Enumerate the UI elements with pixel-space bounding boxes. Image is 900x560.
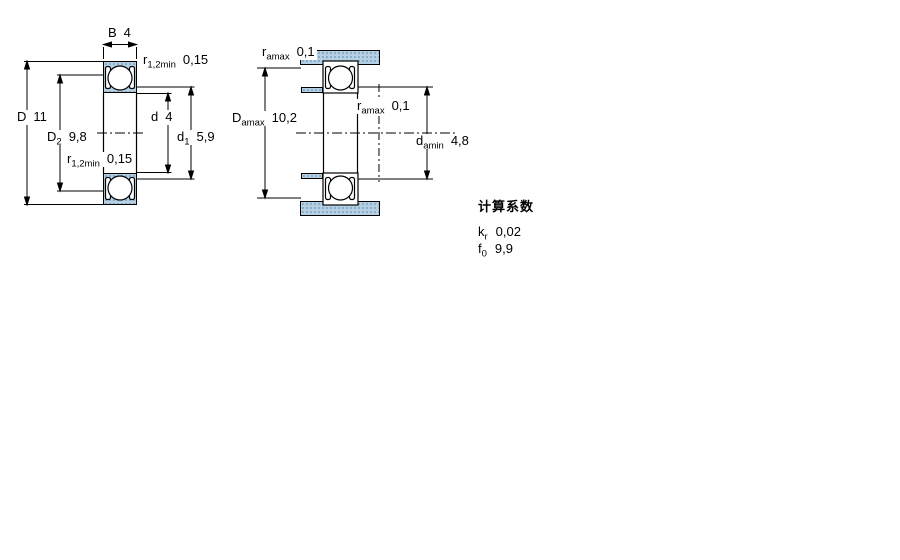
dim-label-d1: d15,9 [175, 130, 217, 145]
dim-label-r12min-bottom: r1,2min0,15 [65, 152, 134, 167]
right-abutment-view [296, 61, 455, 205]
dim-label-B: B4 [106, 26, 133, 41]
right-view-dimensions [257, 68, 433, 198]
dim-symbol: D [232, 110, 241, 125]
dim-value: 4 [165, 109, 172, 124]
dim-value: 0,1 [392, 98, 410, 113]
dim-label-D2: D29,8 [45, 130, 89, 145]
dim-label-Damax: Damax10,2 [230, 111, 299, 126]
bearing-drawing-page: B4 D11 D29,8 r1,2min0,15 r1,2min0,15 d4 … [0, 0, 900, 560]
dim-label-D: D11 [15, 110, 49, 125]
shaft-shoulder-top [301, 87, 323, 93]
dim-symbol: D [17, 109, 26, 124]
housing-section-bottom [300, 201, 380, 216]
dim-value: 4,8 [451, 133, 469, 148]
dim-value: 0,1 [297, 44, 315, 59]
factor-value: 0,02 [496, 224, 521, 239]
dim-label-ramax-top: ramax0,1 [260, 45, 317, 60]
calculation-factors-block: 计算系数 kr0,02 f09,9 [478, 196, 534, 257]
dim-symbol: D [47, 129, 56, 144]
dim-value: 9,8 [69, 129, 87, 144]
dim-value: 11 [33, 109, 47, 124]
shaft-shoulder-bottom [301, 173, 323, 179]
dim-symbol: d [151, 109, 158, 124]
dim-value: 10,2 [272, 110, 297, 125]
dim-value: 0,15 [183, 52, 208, 67]
dim-symbol: B [108, 25, 117, 40]
dim-label-r12min-top: r1,2min0,15 [141, 53, 210, 68]
factor-row-kr: kr0,02 [478, 223, 534, 240]
dim-label-damin: damin4,8 [414, 134, 471, 149]
calculation-factors-title: 计算系数 [478, 196, 534, 215]
dim-label-d: d4 [149, 110, 174, 125]
bearing-ring-section-bottom [103, 173, 137, 205]
factor-row-f0: f09,9 [478, 240, 534, 257]
bearing-ring-section-top [103, 61, 137, 93]
dim-label-ramax-mid: ramax0,1 [355, 99, 412, 114]
factor-value: 9,9 [495, 241, 513, 256]
dim-value: 5,9 [197, 129, 215, 144]
dim-value: 4 [124, 25, 131, 40]
dim-value: 0,15 [107, 151, 132, 166]
